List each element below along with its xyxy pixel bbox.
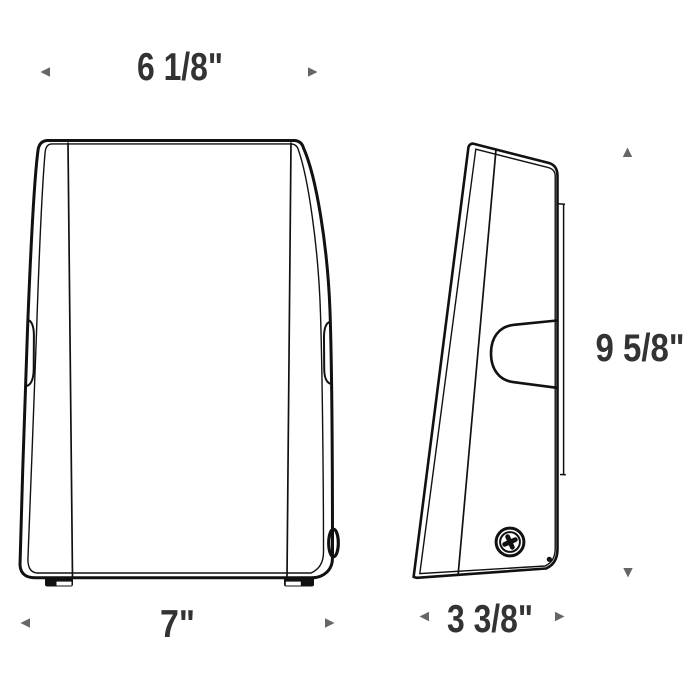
svg-text:7": 7" (160, 603, 195, 646)
svg-text:3 3/8": 3 3/8" (447, 598, 533, 641)
svg-text:6 1/8": 6 1/8" (137, 46, 223, 89)
svg-text:9 5/8": 9 5/8" (596, 327, 685, 370)
